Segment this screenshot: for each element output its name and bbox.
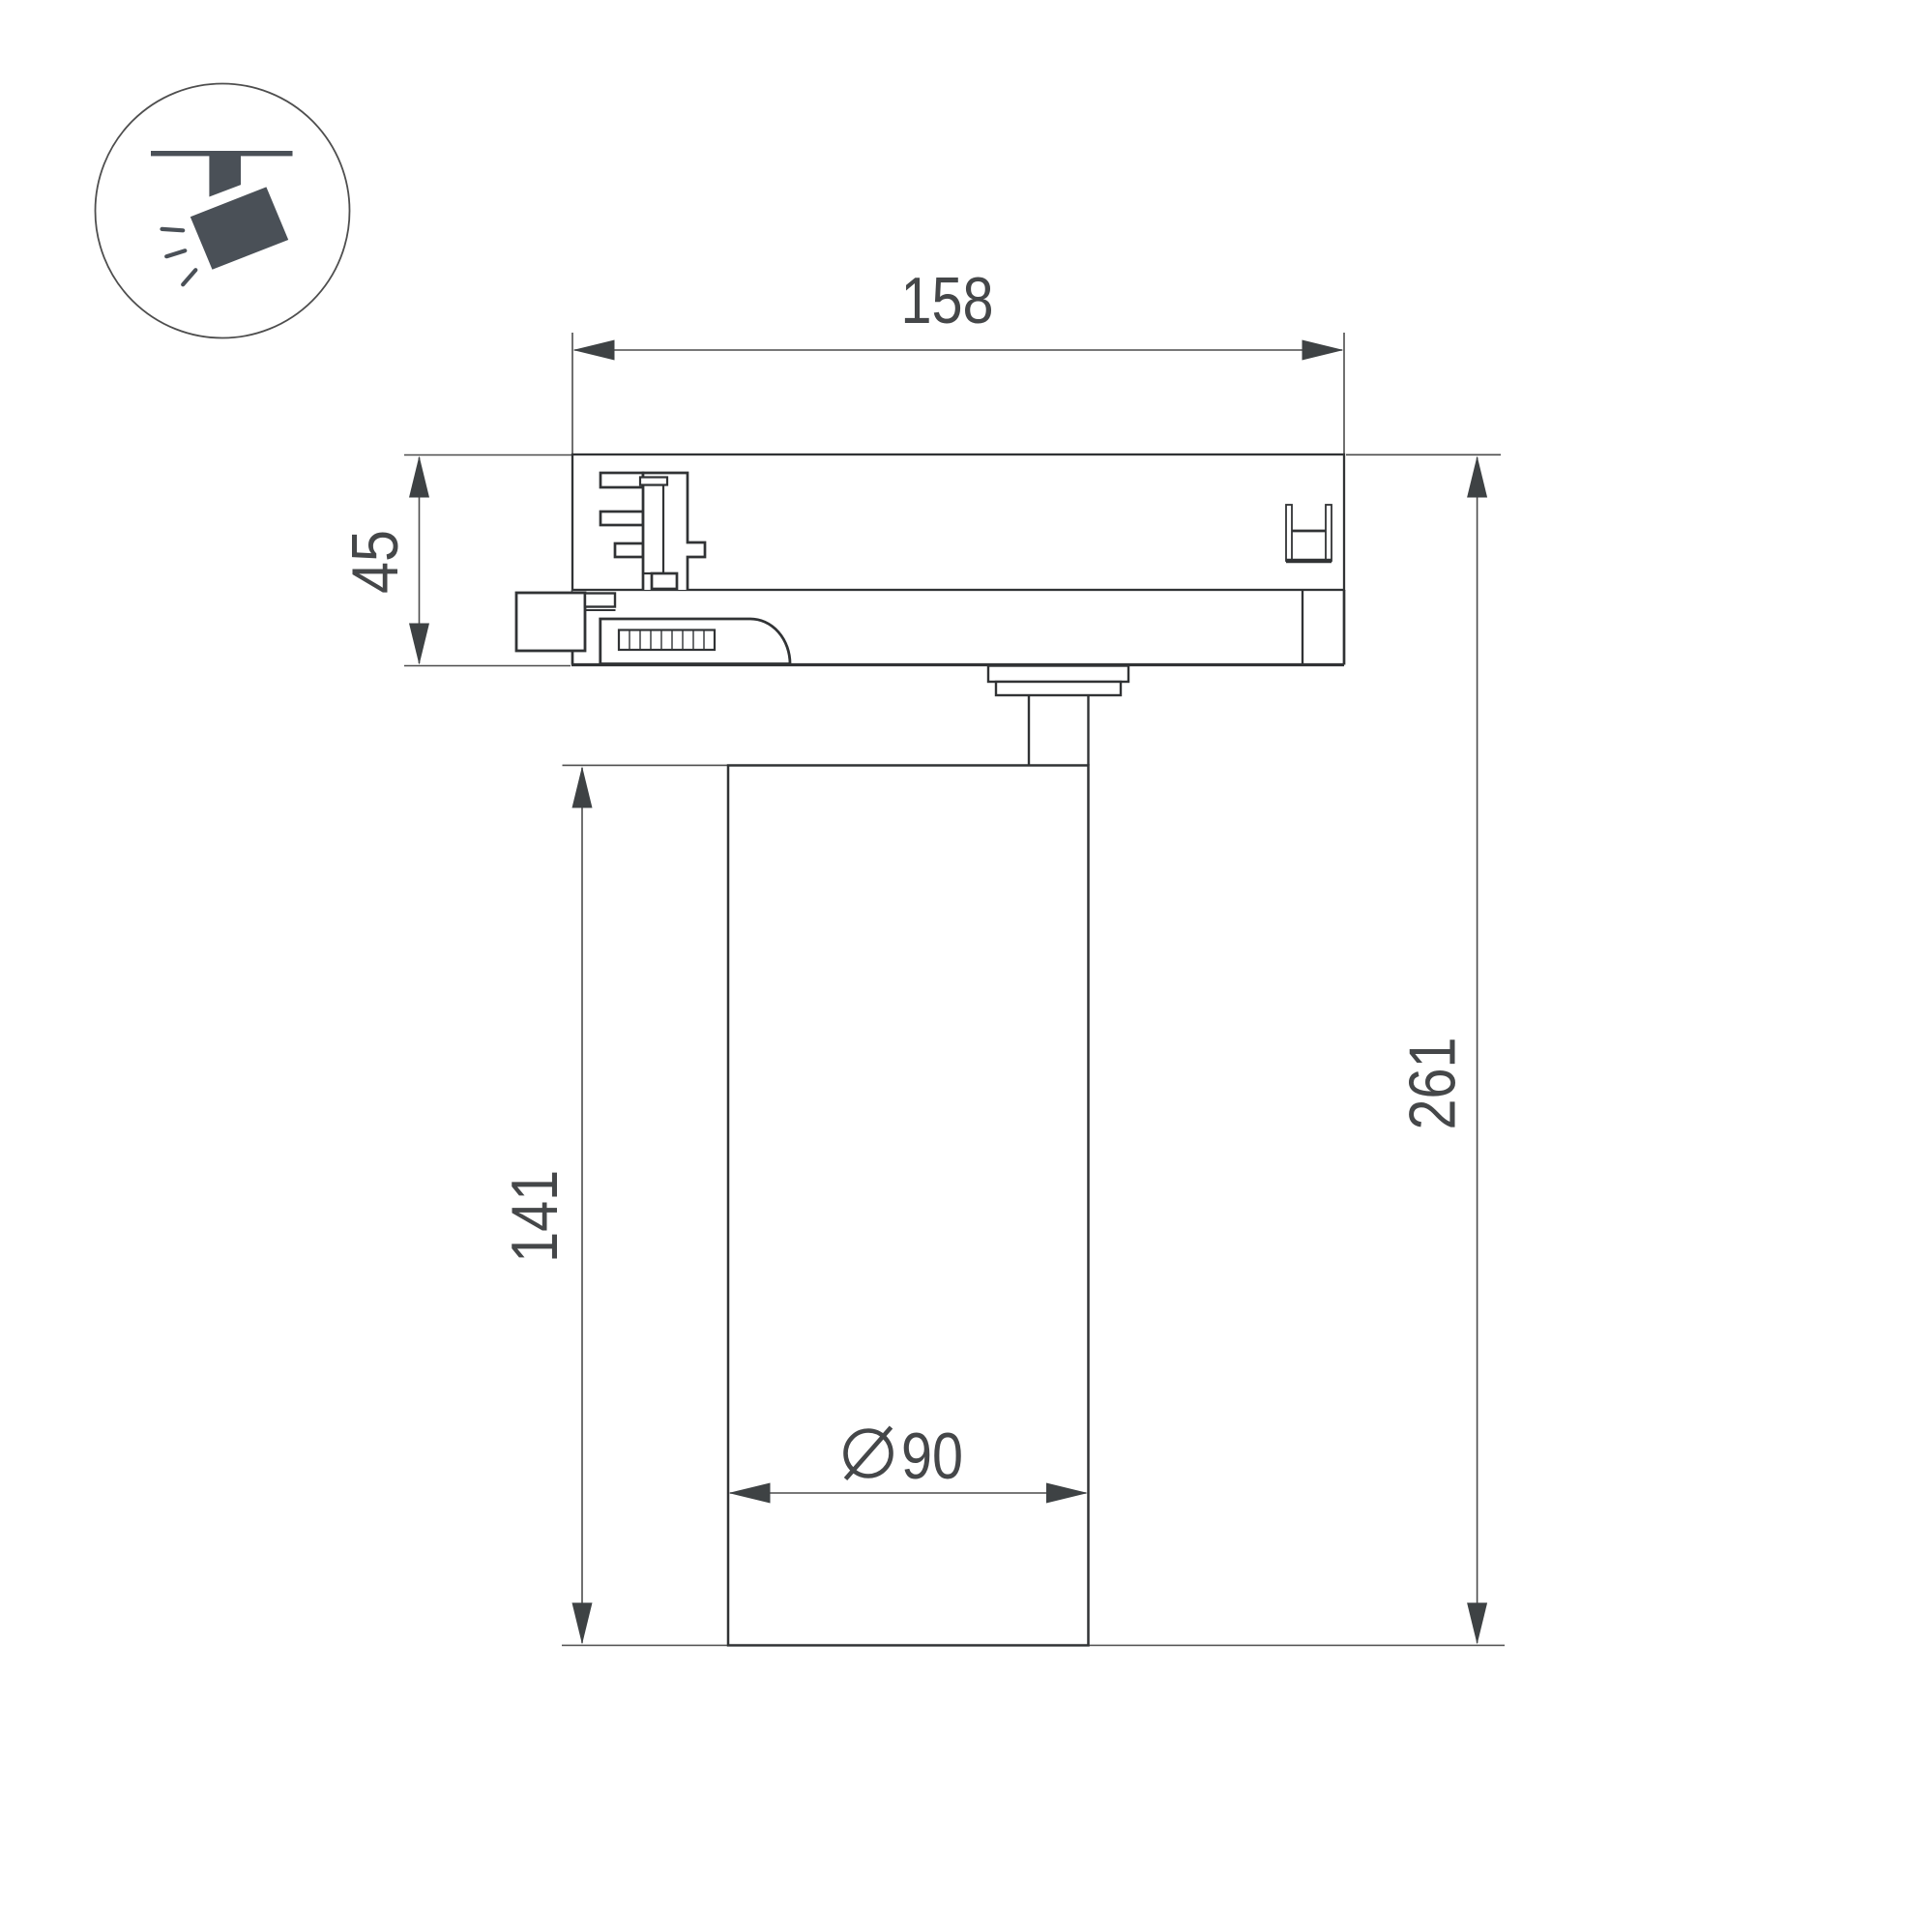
svg-text:45: 45 [338, 530, 412, 594]
svg-text:261: 261 [1396, 1038, 1470, 1130]
svg-text:141: 141 [498, 1170, 571, 1263]
svg-text:158: 158 [901, 264, 994, 337]
svg-text:90: 90 [901, 1420, 963, 1493]
